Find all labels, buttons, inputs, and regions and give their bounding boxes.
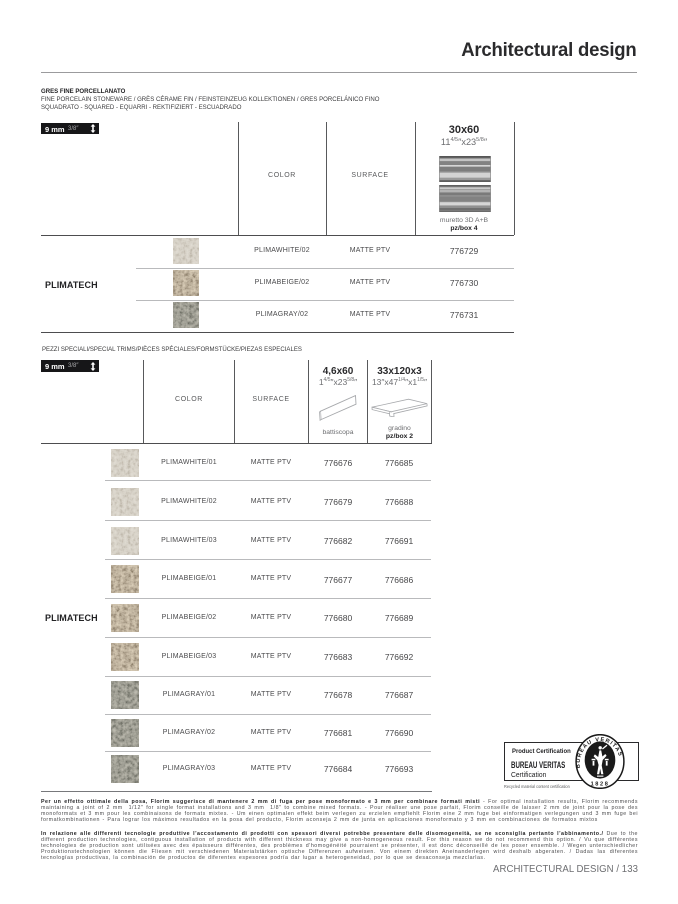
svg-text:1828: 1828 <box>591 782 610 788</box>
